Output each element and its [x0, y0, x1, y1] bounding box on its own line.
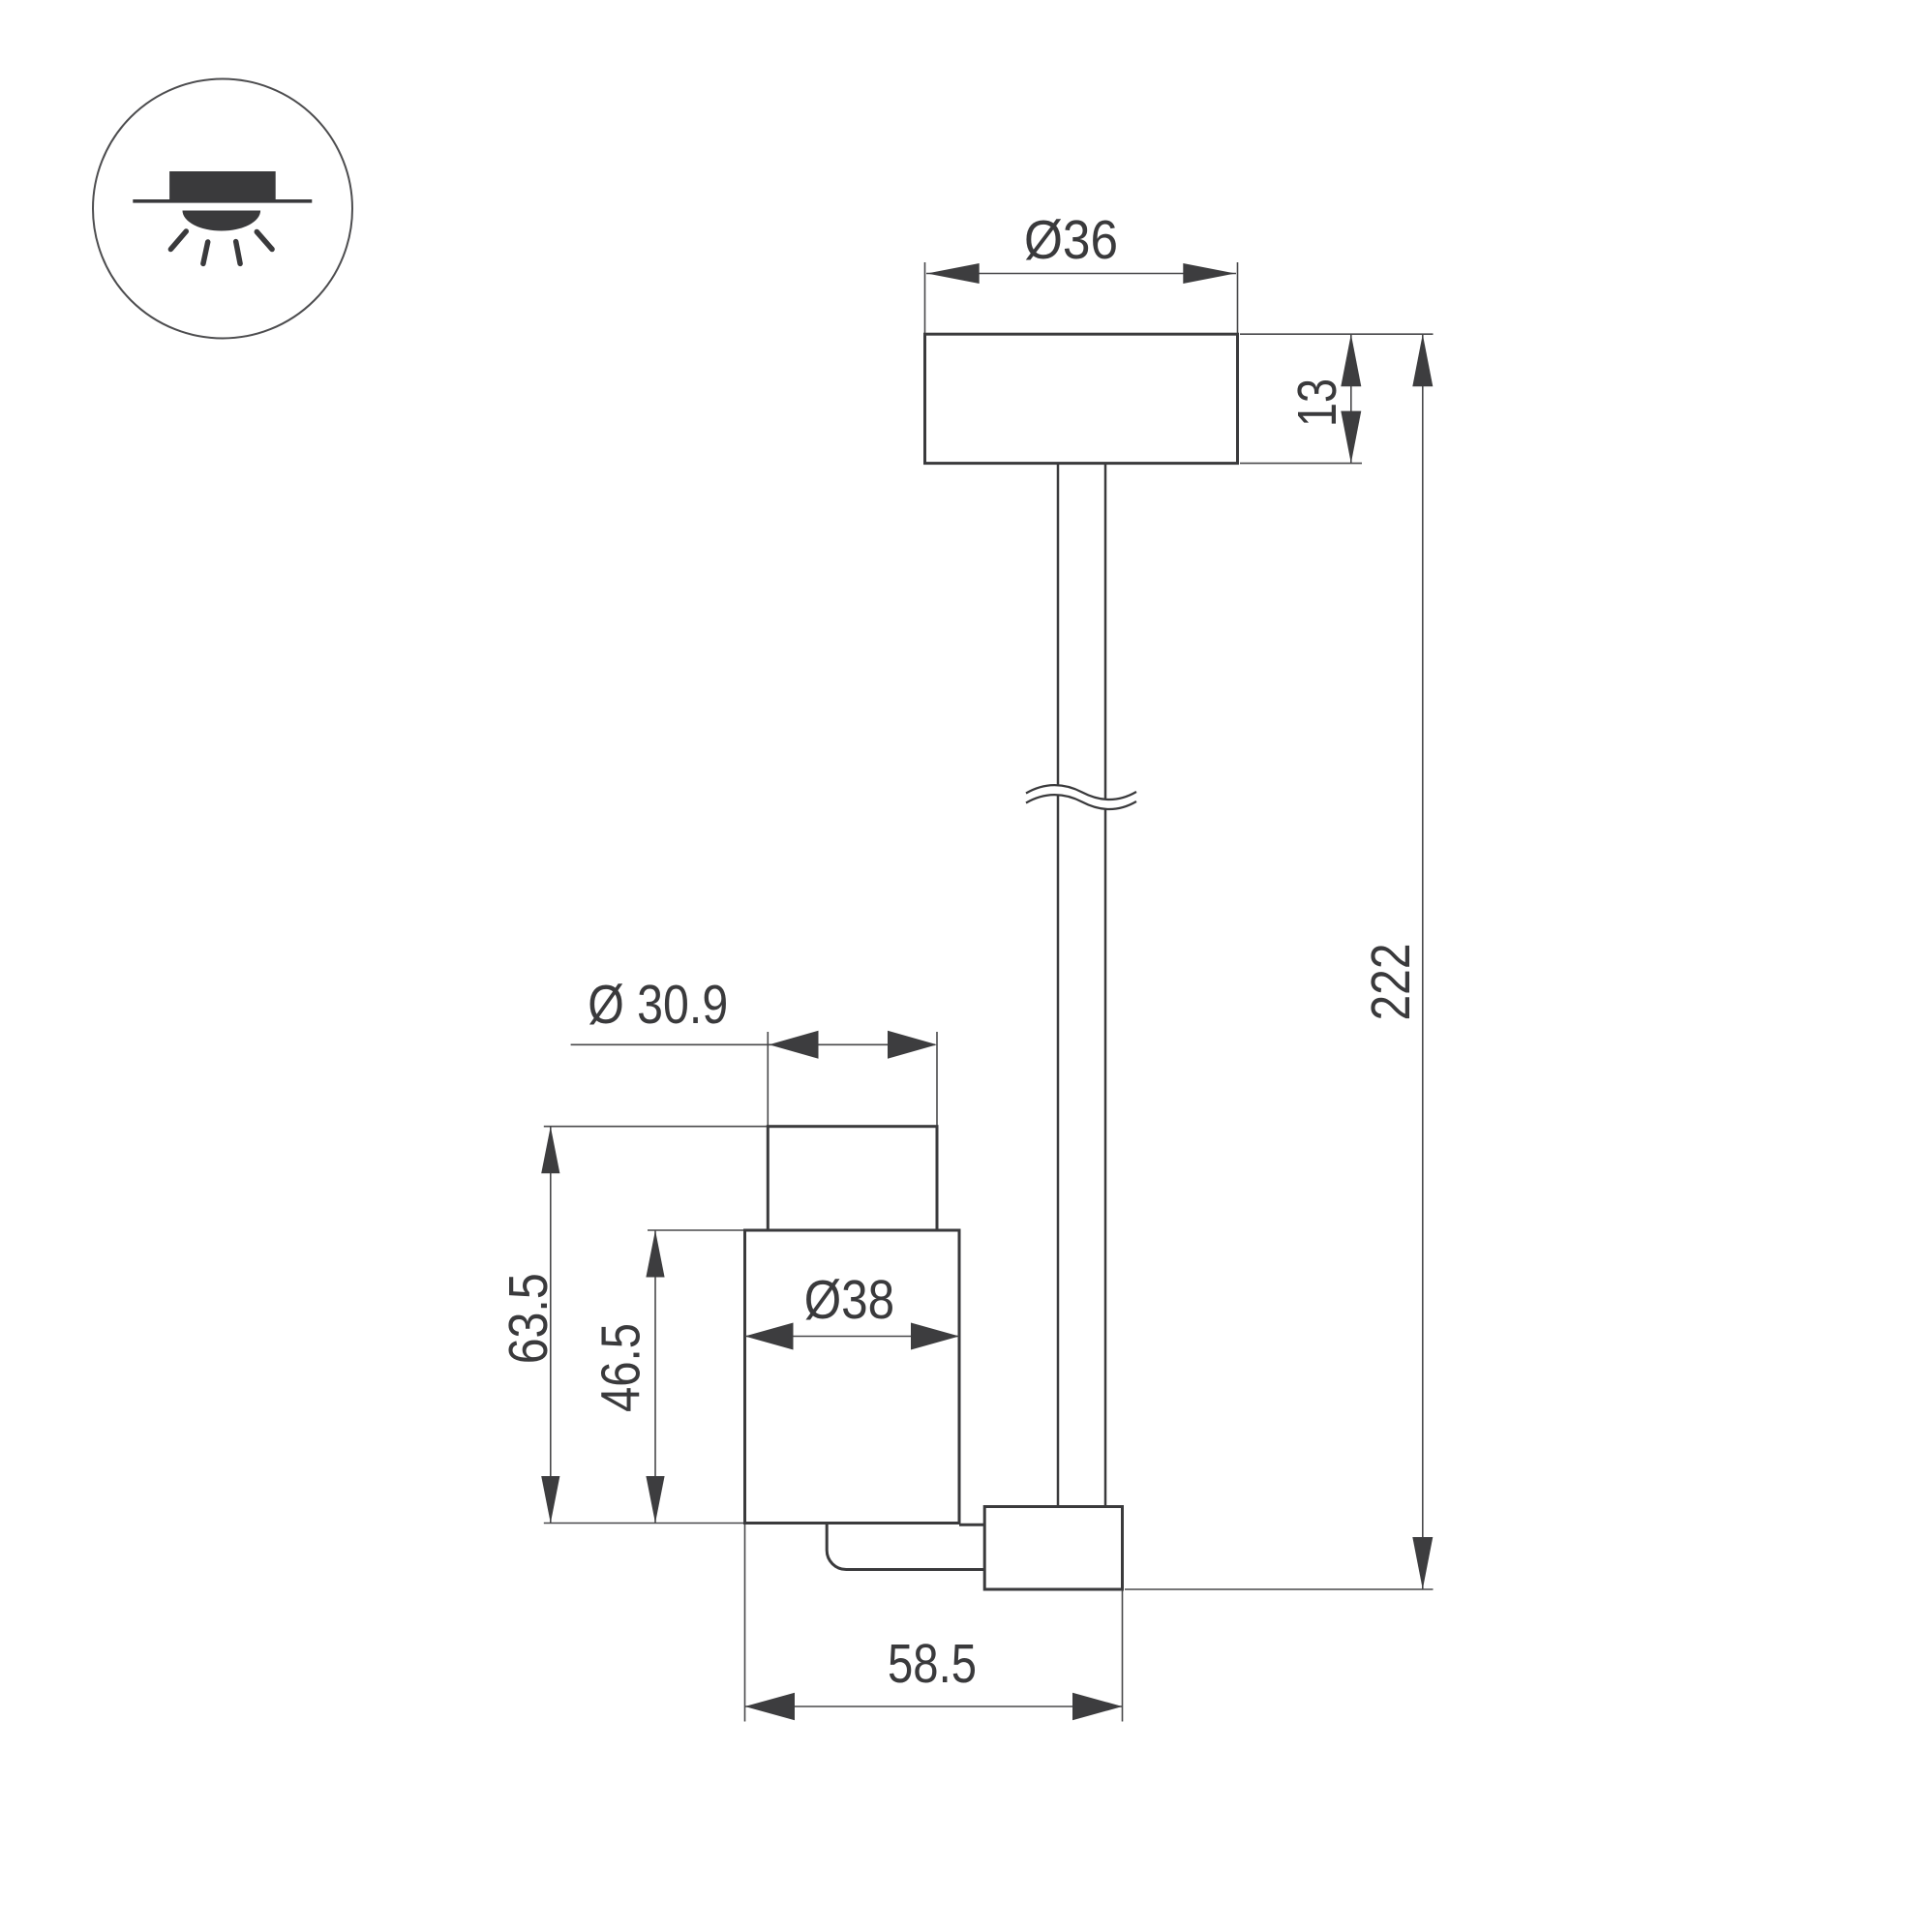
svg-text:13: 13	[1286, 378, 1348, 427]
svg-text:Ø38: Ø38	[804, 1269, 894, 1331]
svg-text:63.5: 63.5	[498, 1273, 559, 1364]
svg-text:Ø 30.9: Ø 30.9	[588, 974, 728, 1036]
svg-text:58.5: 58.5	[888, 1633, 977, 1695]
svg-text:222: 222	[1360, 944, 1422, 1021]
svg-text:46.5: 46.5	[590, 1323, 652, 1412]
svg-text:Ø36: Ø36	[1024, 209, 1118, 271]
